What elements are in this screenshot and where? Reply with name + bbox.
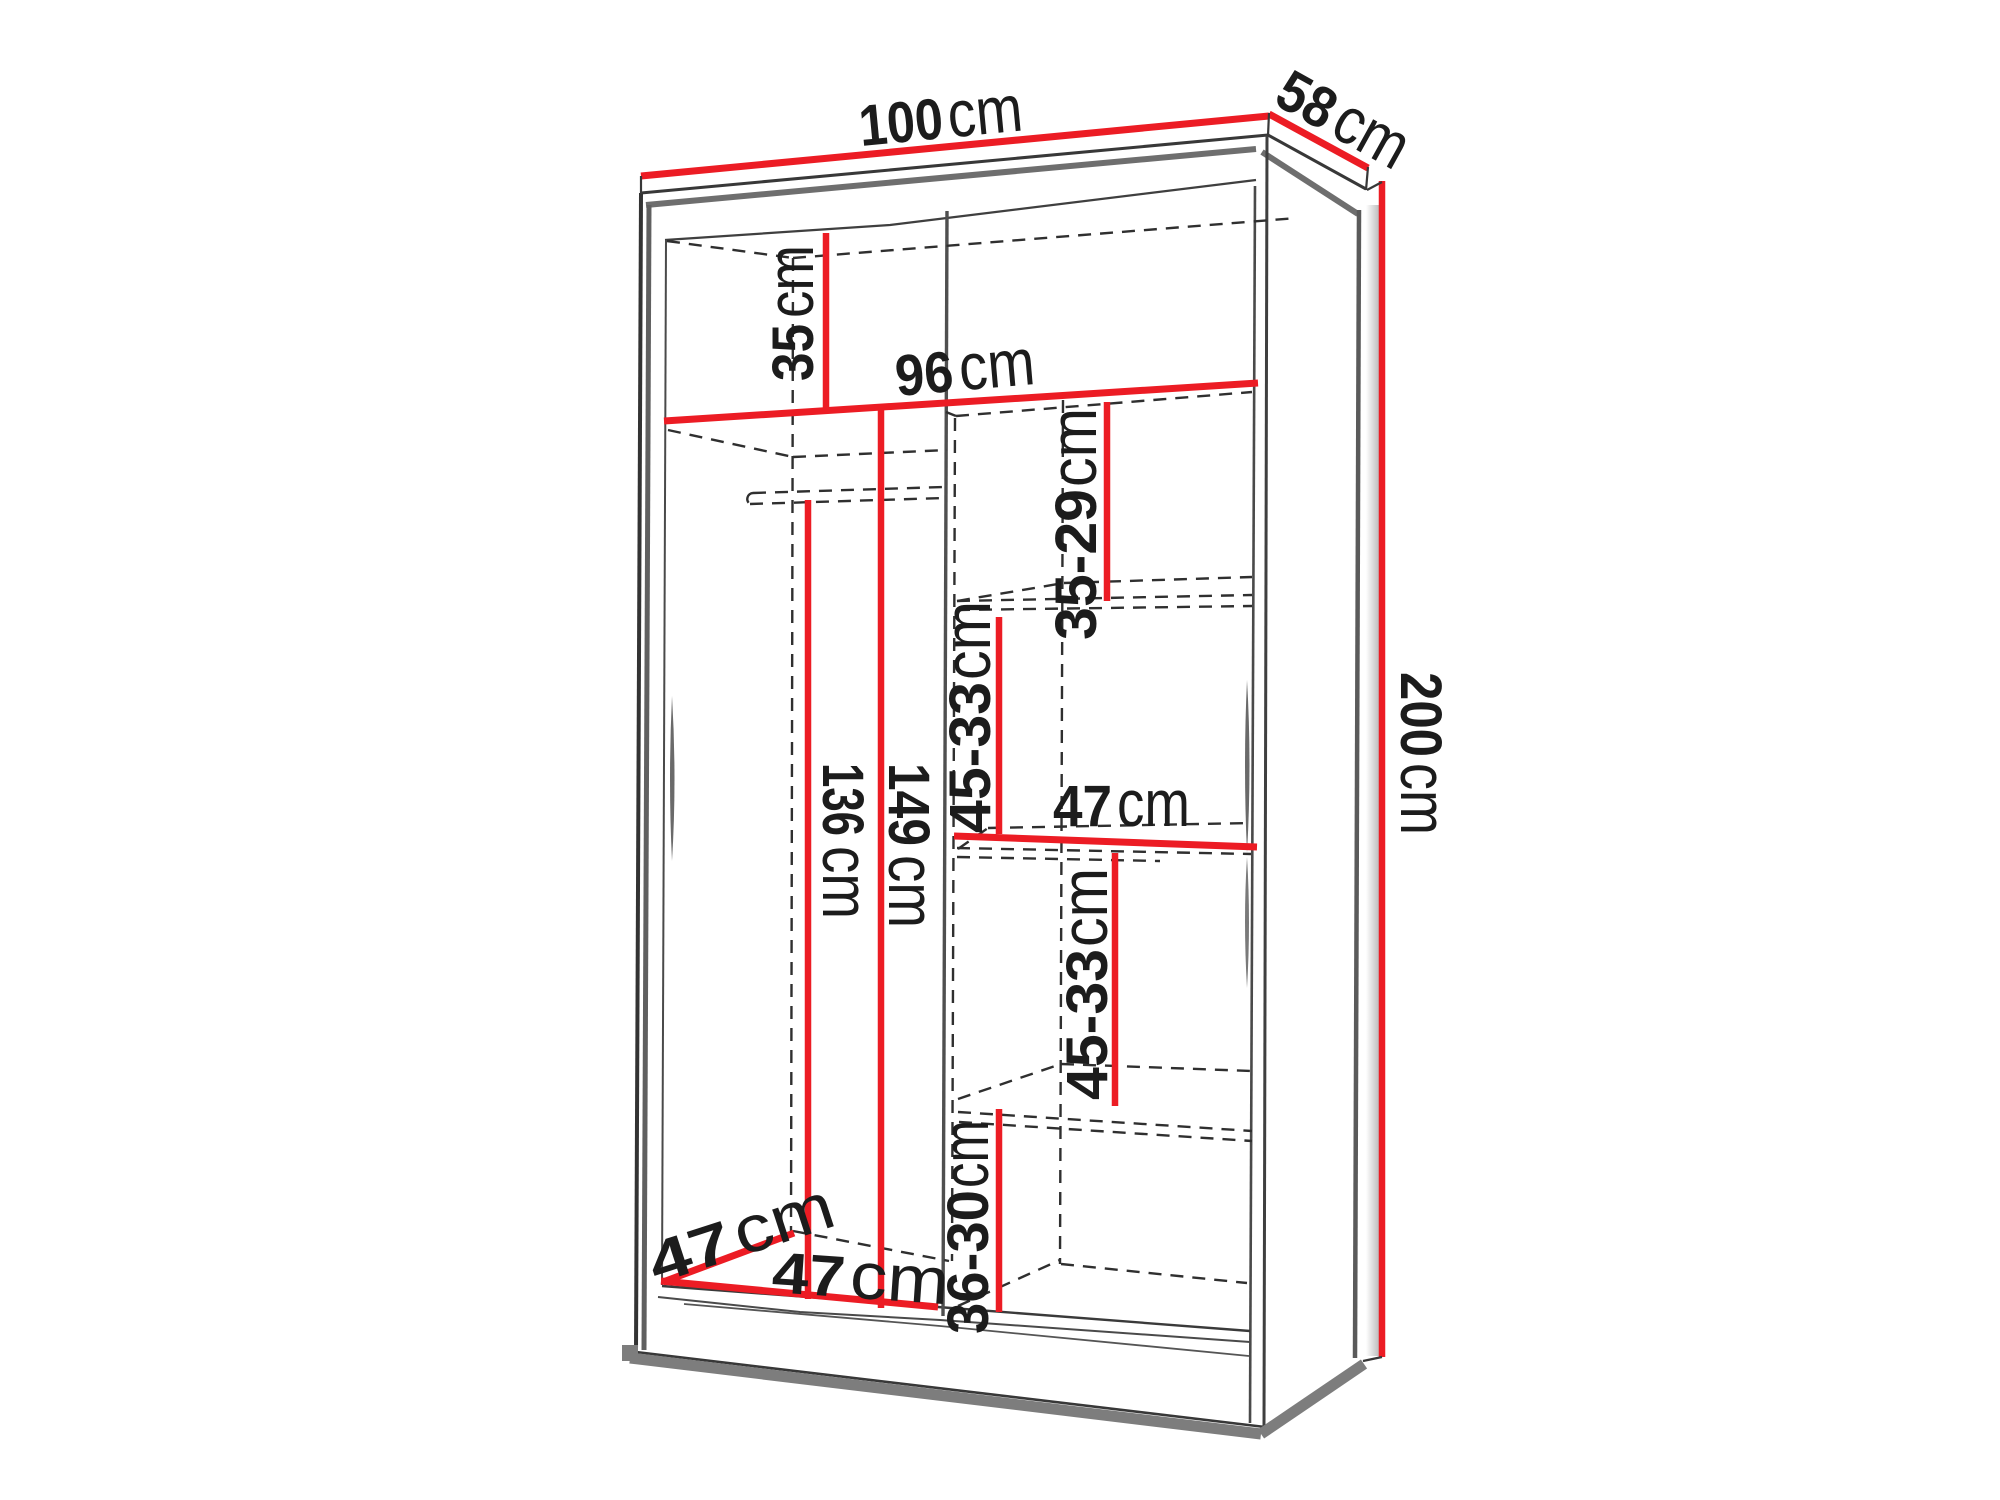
svg-text:45-33: 45-33 bbox=[938, 682, 1003, 833]
svg-text:35-29: 35-29 bbox=[1044, 489, 1109, 640]
svg-text:cm: cm bbox=[944, 71, 1026, 152]
svg-text:cm: cm bbox=[928, 1120, 1002, 1188]
svg-text:96: 96 bbox=[892, 339, 955, 409]
svg-text:100: 100 bbox=[856, 86, 946, 159]
svg-text:45-33: 45-33 bbox=[1055, 949, 1120, 1100]
svg-text:cm: cm bbox=[1047, 868, 1121, 947]
svg-text:cm: cm bbox=[753, 245, 827, 318]
svg-text:35: 35 bbox=[761, 324, 826, 381]
svg-text:cm: cm bbox=[809, 846, 883, 919]
svg-text:cm: cm bbox=[875, 855, 949, 928]
svg-text:cm: cm bbox=[848, 1238, 952, 1319]
svg-text:200: 200 bbox=[1388, 672, 1453, 757]
svg-text:47: 47 bbox=[1053, 774, 1112, 839]
svg-text:47: 47 bbox=[770, 1240, 847, 1310]
svg-text:cm: cm bbox=[1117, 766, 1190, 840]
svg-text:cm: cm bbox=[1387, 763, 1461, 835]
svg-text:cm: cm bbox=[1036, 408, 1110, 487]
svg-text:136: 136 bbox=[810, 763, 875, 836]
svg-text:cm: cm bbox=[956, 324, 1038, 404]
svg-text:cm: cm bbox=[930, 601, 1004, 680]
svg-text:149: 149 bbox=[876, 763, 941, 846]
